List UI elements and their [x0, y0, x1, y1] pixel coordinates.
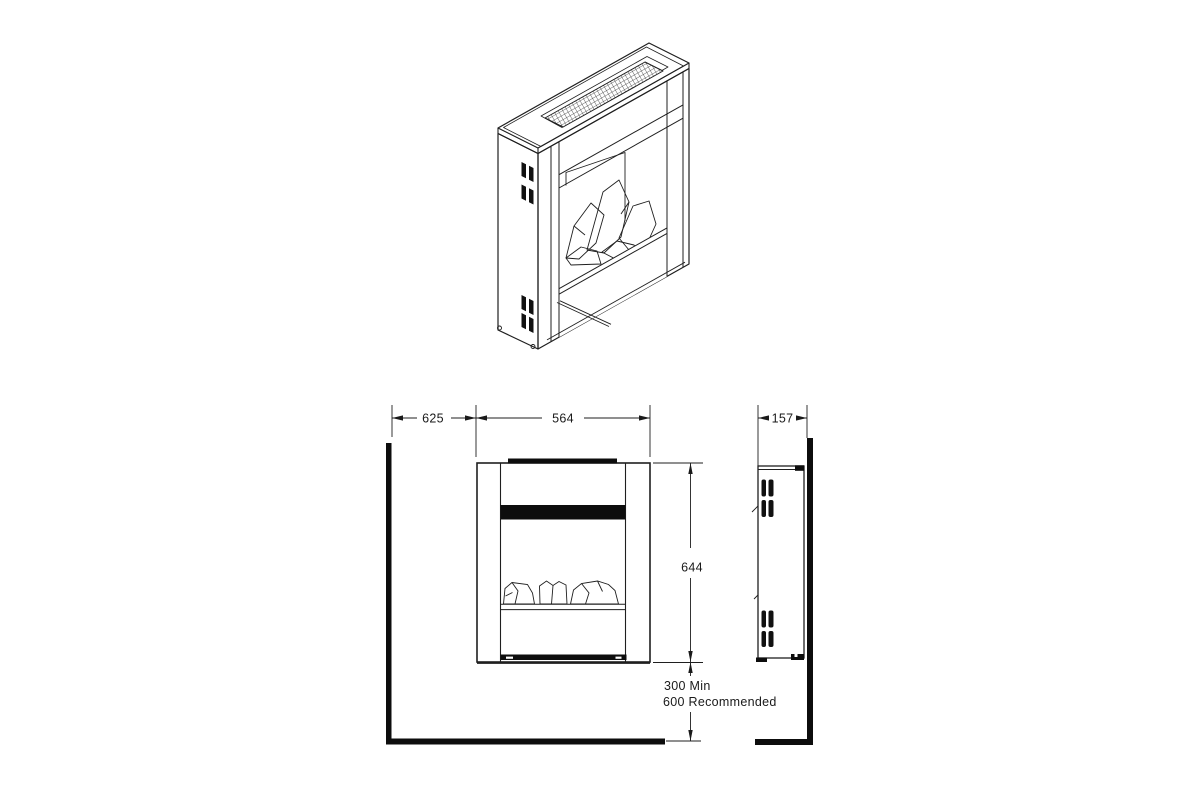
front-elevation-view: 625 564 644 300 Min 600 Recommended [386, 405, 777, 745]
front-bottom-strip-notch-left [506, 657, 513, 659]
dimension-arrow [465, 415, 476, 420]
dimension-arrow [688, 463, 692, 474]
front-top-grille-strip [508, 459, 617, 464]
iso-side-louvres [522, 162, 534, 333]
side-bottom-bracket-notch [795, 654, 798, 657]
side-elevation-view: 157 [752, 405, 813, 745]
dimension-label-644: 644 [681, 561, 703, 575]
drawing-canvas: 625 564 644 300 Min 600 Recommended [0, 0, 1200, 800]
side-top-fixing-block [795, 465, 804, 471]
dimension-wall-to-unit: 625 [392, 405, 476, 457]
dimension-arrow [688, 662, 692, 673]
iso-left-side-face [498, 134, 538, 350]
dimension-label-625: 625 [422, 412, 444, 426]
heater-outlet-band [501, 505, 626, 520]
dimension-arrow [639, 415, 650, 420]
iso-fascia-band [559, 105, 683, 221]
front-bottom-strip [501, 655, 627, 661]
front-unit-outline [477, 463, 650, 662]
technical-drawing: 625 564 644 300 Min 600 Recommended [0, 0, 1200, 800]
dimension-floor-clearance: 300 Min 600 Recommended [663, 662, 777, 741]
clearance-label-line2: 600 Recommended [663, 695, 777, 709]
isometric-view [498, 43, 690, 349]
dimension-arrow [392, 415, 403, 420]
side-edge-ticks [752, 506, 758, 599]
front-wall-section-line [386, 443, 392, 744]
dimension-arrow [758, 415, 769, 420]
dimension-label-157: 157 [772, 412, 794, 426]
dimension-arrow [476, 415, 487, 420]
dimension-unit-depth: 157 [758, 405, 807, 466]
dimension-arrow [688, 730, 692, 741]
side-wall-section-line [807, 438, 813, 745]
side-floor-section-line [755, 739, 813, 745]
dimension-label-564: 564 [552, 412, 574, 426]
dimension-arrow [688, 651, 692, 662]
front-bottom-strip-notch-right [616, 657, 622, 659]
clearance-label-line1: 300 Min [664, 679, 711, 693]
dimension-unit-width: 564 [476, 405, 650, 457]
dimension-unit-height: 644 [653, 463, 703, 663]
front-floor-section-line [386, 739, 665, 745]
dimension-arrow [796, 415, 807, 420]
side-foot-left [756, 658, 767, 663]
